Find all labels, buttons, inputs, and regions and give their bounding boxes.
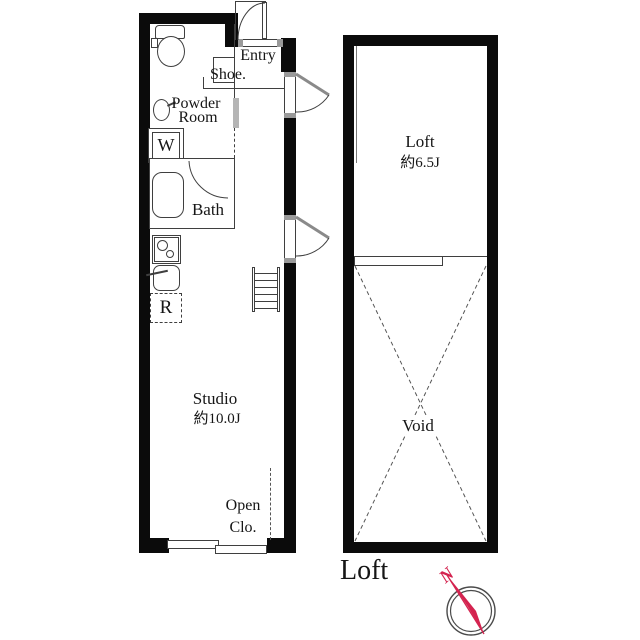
- open-closet-label-line1: Open: [226, 498, 261, 514]
- floor-name-label: Loft: [340, 557, 388, 585]
- bath-door-arc: [189, 161, 228, 198]
- loft-room-label: Loft: [405, 133, 434, 150]
- bath-label: Bath: [192, 201, 224, 218]
- compass-icon: [447, 575, 495, 635]
- studio-label: Studio: [193, 390, 237, 407]
- entry-door-arc: [238, 3, 265, 40]
- studio-size-label: 約10.0J: [193, 412, 240, 427]
- powder-room-label-line2: Room: [178, 110, 217, 126]
- loft-size-label: 約6.5J: [400, 156, 440, 171]
- floor-plan-canvas: W R: [0, 0, 640, 640]
- casement-leaf-lower: [296, 217, 329, 238]
- plan-linework-overlay: [0, 0, 640, 640]
- casement-leaf-upper: [296, 74, 329, 95]
- casement-arc-upper: [296, 95, 329, 112]
- shoe-label: Shoe.: [210, 67, 246, 83]
- casement-arc-lower: [296, 238, 329, 256]
- entry-label: Entry: [240, 48, 276, 64]
- void-label: Void: [399, 417, 437, 434]
- open-closet-label-line2: Clo.: [229, 520, 256, 536]
